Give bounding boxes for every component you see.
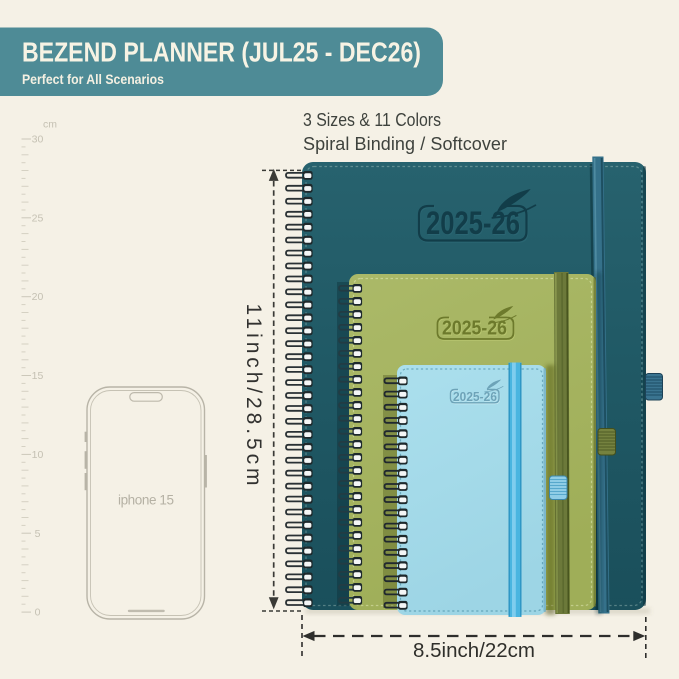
svg-text:0: 0 bbox=[35, 607, 41, 619]
svg-text:5: 5 bbox=[35, 528, 41, 540]
svg-text:3 Sizes & 11 Colors: 3 Sizes & 11 Colors bbox=[303, 110, 441, 130]
svg-text:Perfect for All Scenarios: Perfect for All Scenarios bbox=[22, 71, 164, 87]
svg-text:Spiral Binding / Softcover: Spiral Binding / Softcover bbox=[303, 134, 507, 154]
svg-text:2025-26: 2025-26 bbox=[426, 205, 520, 241]
svg-text:20: 20 bbox=[32, 291, 44, 303]
svg-text:10: 10 bbox=[32, 449, 44, 461]
svg-text:BEZEND PLANNER (JUL25 - DEC26): BEZEND PLANNER (JUL25 - DEC26) bbox=[22, 37, 421, 68]
svg-text:cm: cm bbox=[43, 119, 57, 131]
svg-text:2025-26: 2025-26 bbox=[442, 317, 507, 340]
svg-text:15: 15 bbox=[32, 370, 44, 382]
svg-text:25: 25 bbox=[32, 212, 44, 224]
svg-text:8.5inch/22cm: 8.5inch/22cm bbox=[413, 639, 535, 662]
svg-text:iphone 15: iphone 15 bbox=[118, 493, 174, 508]
svg-text:30: 30 bbox=[32, 134, 44, 146]
svg-text:2025-26: 2025-26 bbox=[453, 390, 497, 404]
